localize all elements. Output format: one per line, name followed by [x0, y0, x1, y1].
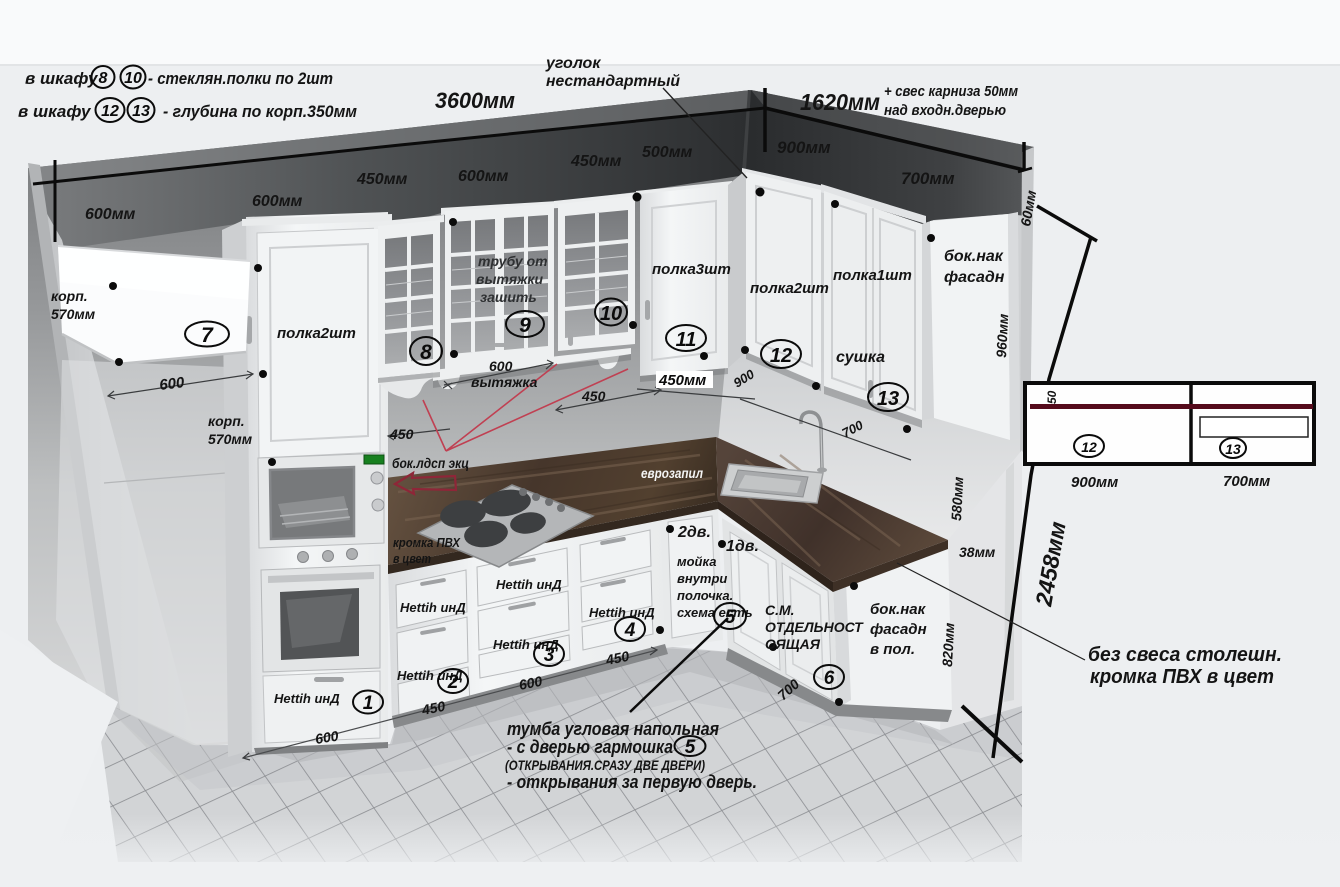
svg-text:570мм: 570мм — [208, 431, 253, 447]
svg-text:сушка: сушка — [836, 349, 885, 366]
svg-text:700мм: 700мм — [1223, 473, 1270, 490]
svg-text:600: 600 — [158, 374, 186, 394]
svg-text:полка2шт: полка2шт — [277, 325, 356, 342]
svg-text:трубу от: трубу от — [478, 253, 548, 269]
svg-text:450: 450 — [581, 388, 606, 404]
svg-text:1620мм: 1620мм — [800, 89, 880, 115]
svg-text:полка3шт: полка3шт — [652, 261, 731, 278]
svg-text:С.М.: С.М. — [765, 602, 795, 618]
svg-text:нестандартный: нестандартный — [546, 73, 680, 90]
svg-text:900мм: 900мм — [777, 138, 831, 157]
svg-text:полка2шт: полка2шт — [750, 280, 829, 297]
svg-text:450мм: 450мм — [570, 153, 622, 170]
svg-text:2дв.: 2дв. — [677, 524, 711, 541]
svg-text:3: 3 — [544, 645, 555, 666]
svg-text:500мм: 500мм — [642, 144, 693, 161]
svg-text:13: 13 — [1225, 441, 1241, 457]
svg-text:1: 1 — [363, 693, 374, 714]
svg-text:корп.: корп. — [51, 288, 88, 304]
svg-text:ОТДЕЛЬНОСТ: ОТДЕЛЬНОСТ — [765, 619, 864, 635]
svg-text:5: 5 — [685, 737, 696, 758]
svg-text:9: 9 — [519, 314, 531, 337]
svg-text:(ОТКРЫВАНИЯ.СРАЗУ ДВЕ ДВЕРИ): (ОТКРЫВАНИЯ.СРАЗУ ДВЕ ДВЕРИ) — [505, 757, 705, 773]
svg-text:полочка.: полочка. — [677, 588, 733, 603]
svg-text:5: 5 — [725, 607, 736, 628]
svg-text:полка1шт: полка1шт — [833, 267, 912, 284]
svg-text:Hettih инД: Hettih инД — [496, 577, 562, 592]
svg-text:внутри: внутри — [677, 571, 727, 586]
svg-text:вытяжки: вытяжки — [476, 271, 544, 287]
svg-text:8: 8 — [99, 70, 108, 87]
svg-text:12: 12 — [101, 103, 119, 120]
svg-text:8: 8 — [420, 341, 432, 364]
svg-text:3600мм: 3600мм — [435, 88, 515, 113]
svg-text:- с дверью гармошка: - с дверью гармошка — [507, 737, 673, 757]
svg-text:13: 13 — [132, 103, 150, 120]
svg-text:580мм: 580мм — [948, 476, 966, 521]
svg-text:Hettih инД: Hettih инД — [274, 691, 340, 706]
svg-text:11: 11 — [676, 329, 697, 351]
svg-text:кромка ПВХ: кромка ПВХ — [393, 535, 461, 550]
svg-text:- стеклян.полки по 2шт: - стеклян.полки по 2шт — [148, 69, 333, 88]
svg-text:в пол.: в пол. — [870, 641, 915, 658]
svg-text:600: 600 — [489, 358, 513, 374]
svg-text:бок.нак: бок.нак — [870, 601, 927, 618]
svg-text:600мм: 600мм — [458, 168, 509, 185]
svg-text:зашить: зашить — [480, 289, 537, 305]
svg-text:мойка: мойка — [677, 554, 716, 569]
svg-text:1дв.: 1дв. — [726, 538, 759, 555]
svg-text:900мм: 900мм — [1071, 474, 1118, 491]
svg-text:над входн.дверью: над входн.дверью — [884, 102, 1006, 119]
svg-text:820мм: 820мм — [939, 622, 957, 667]
svg-text:12: 12 — [770, 345, 792, 367]
svg-text:фасадн: фасадн — [870, 621, 927, 638]
svg-text:13: 13 — [877, 388, 899, 410]
svg-text:450мм: 450мм — [658, 372, 706, 389]
svg-text:12: 12 — [1081, 439, 1097, 455]
svg-text:50: 50 — [1045, 390, 1059, 404]
svg-text:450мм: 450мм — [356, 171, 408, 188]
svg-text:2: 2 — [447, 672, 459, 693]
svg-text:38мм: 38мм — [959, 544, 996, 560]
svg-text:- глубина по корп.350мм: - глубина по корп.350мм — [163, 102, 357, 121]
svg-text:Hettih инД: Hettih инД — [400, 600, 466, 615]
svg-text:в цвет: в цвет — [393, 551, 431, 566]
svg-text:в шкафу: в шкафу — [18, 102, 92, 121]
svg-text:кромка ПВХ в цвет: кромка ПВХ в цвет — [1090, 666, 1274, 688]
svg-text:6: 6 — [824, 668, 835, 689]
svg-text:бок.лдсп экц: бок.лдсп экц — [392, 455, 469, 471]
svg-text:450: 450 — [389, 426, 414, 442]
svg-text:вытяжка: вытяжка — [471, 374, 538, 390]
svg-text:600мм: 600мм — [85, 206, 136, 223]
svg-text:600мм: 600мм — [252, 193, 303, 210]
svg-text:10: 10 — [600, 303, 622, 325]
svg-text:ОЯЩАЯ: ОЯЩАЯ — [765, 636, 821, 652]
svg-text:в шкафу: в шкафу — [25, 69, 99, 88]
svg-text:570мм: 570мм — [51, 306, 96, 322]
svg-text:бок.нак: бок.нак — [944, 248, 1004, 265]
svg-text:корп.: корп. — [208, 413, 245, 429]
svg-text:уголок: уголок — [545, 55, 601, 72]
svg-text:фасадн: фасадн — [944, 269, 1005, 286]
svg-text:700мм: 700мм — [901, 169, 955, 188]
svg-text:4: 4 — [624, 620, 636, 641]
svg-text:960мм: 960мм — [993, 313, 1011, 358]
svg-text:7: 7 — [201, 324, 214, 347]
svg-text:еврозапил: еврозапил — [641, 466, 704, 481]
svg-text:+ свес карниза 50мм: + свес карниза 50мм — [884, 83, 1018, 100]
svg-text:без свеса столешн.: без свеса столешн. — [1088, 644, 1282, 666]
svg-text:- открывания за первую дверь.: - открывания за первую дверь. — [507, 772, 757, 792]
svg-text:10: 10 — [124, 70, 142, 87]
